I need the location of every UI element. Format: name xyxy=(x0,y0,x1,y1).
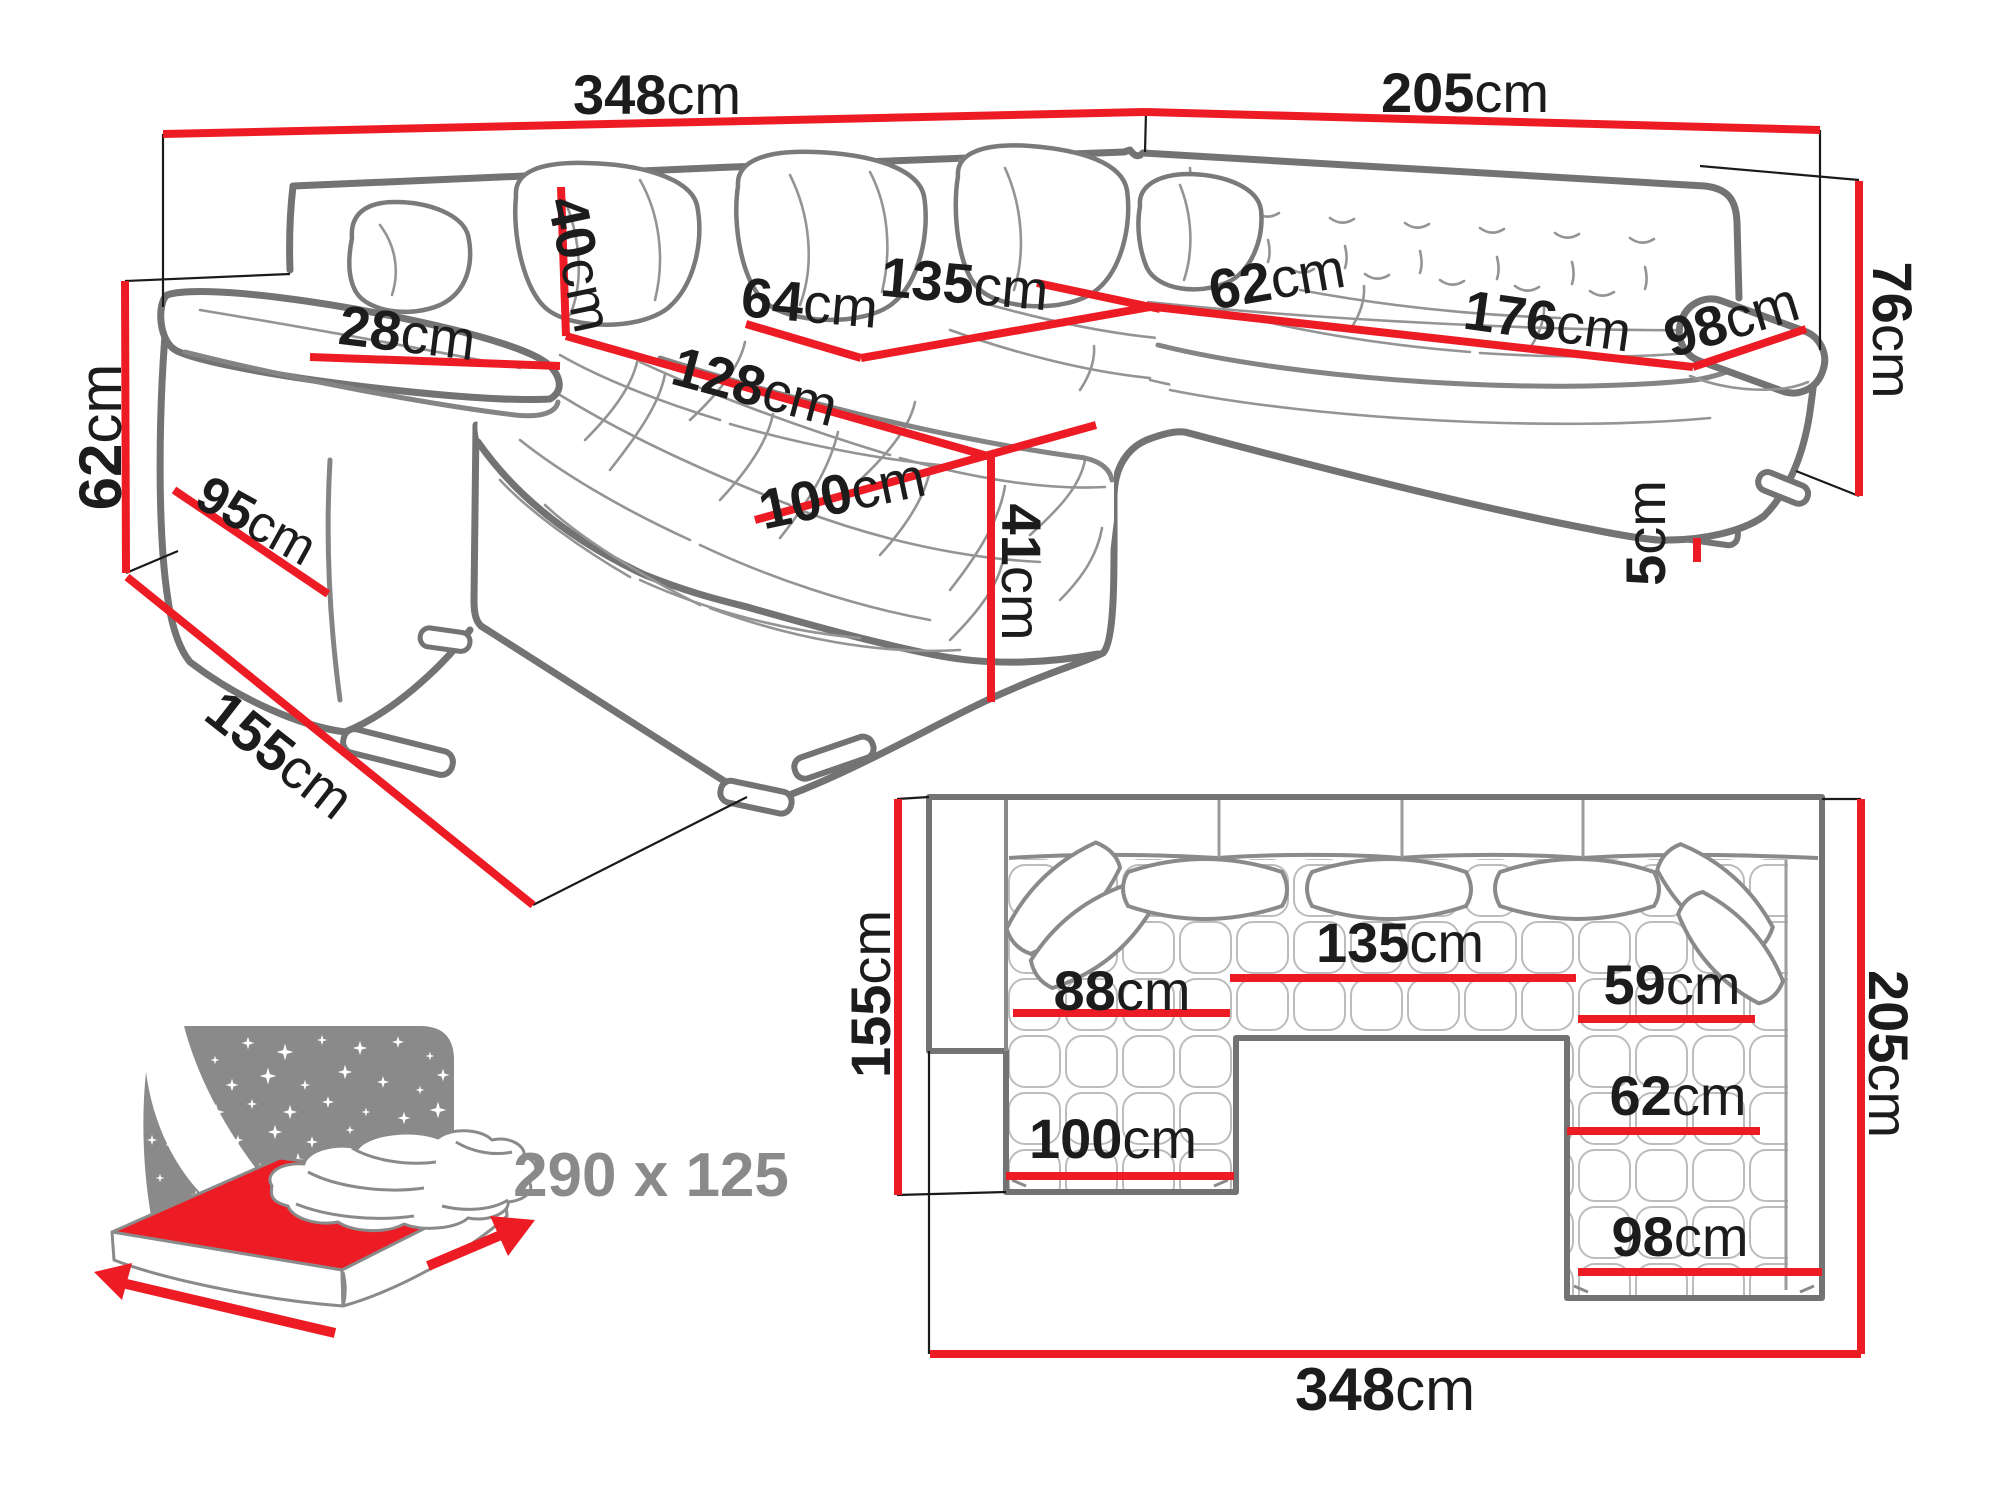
svg-text:76cm: 76cm xyxy=(1862,262,1925,399)
svg-text:62cm: 62cm xyxy=(1610,1064,1747,1127)
svg-text:205cm: 205cm xyxy=(1858,970,1921,1138)
svg-text:155cm: 155cm xyxy=(839,910,902,1078)
svg-text:59cm: 59cm xyxy=(1604,953,1741,1016)
svg-text:348cm: 348cm xyxy=(573,63,741,126)
svg-text:62cm: 62cm xyxy=(67,364,134,511)
svg-text:135cm: 135cm xyxy=(1316,911,1484,974)
svg-text:290 x 125: 290 x 125 xyxy=(513,1141,789,1210)
svg-text:64cm: 64cm xyxy=(739,265,881,340)
svg-text:348cm: 348cm xyxy=(1295,1356,1475,1423)
svg-text:205cm: 205cm xyxy=(1381,61,1549,124)
svg-text:100cm: 100cm xyxy=(1029,1107,1197,1170)
svg-text:88cm: 88cm xyxy=(1054,959,1191,1022)
svg-text:98cm: 98cm xyxy=(1612,1205,1749,1268)
svg-text:5cm: 5cm xyxy=(1614,480,1677,586)
svg-text:41cm: 41cm xyxy=(991,504,1054,641)
